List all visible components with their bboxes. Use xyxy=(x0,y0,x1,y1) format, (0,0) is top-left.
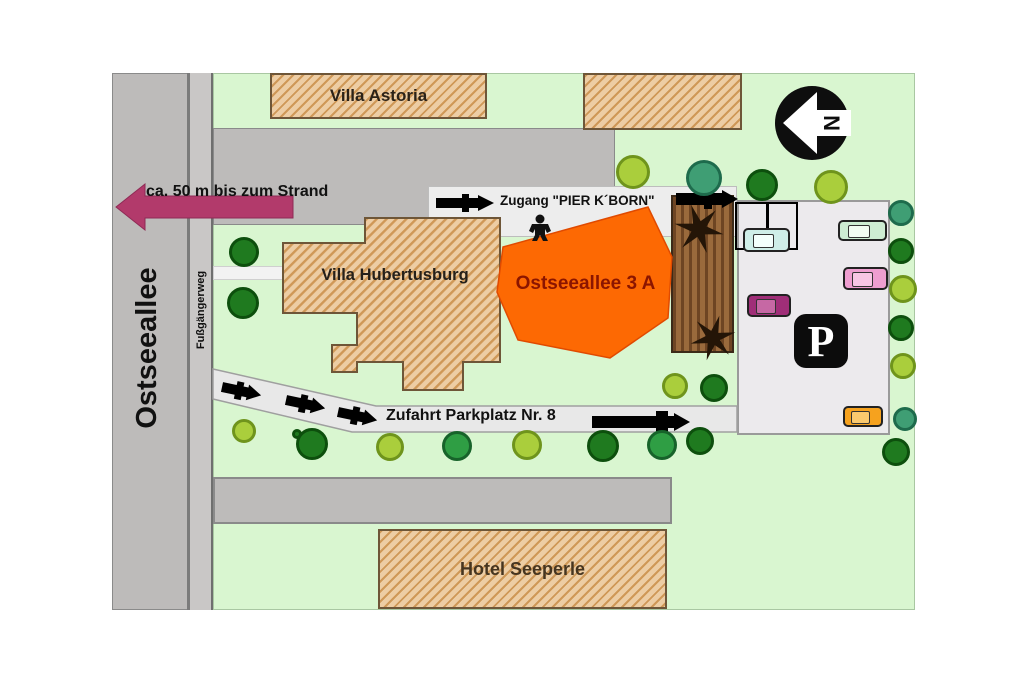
parking-space-divider xyxy=(766,204,769,248)
north-letter: N xyxy=(820,115,845,131)
direction-arrow xyxy=(676,189,738,209)
street-name-fussgaengerweg: Fußgängerweg xyxy=(195,265,209,355)
villa-hubertusburg-label: Villa Hubertusburg xyxy=(297,266,493,285)
site-map: Villa Astoria Hotel Seeperle xyxy=(0,0,1024,683)
street-name-ostseeallee: Ostseeallee xyxy=(131,263,165,433)
parking-sign-icon: P xyxy=(794,314,848,368)
beach-distance-label: ca. 50 m bis zum Strand xyxy=(146,183,328,201)
building-villa-hubertusburg xyxy=(283,218,500,390)
parking-access-label: Zufahrt Parkplatz Nr. 8 xyxy=(386,407,556,425)
marked-parking-spaces xyxy=(735,202,798,250)
property-address-label: Ostseeallee 3 A xyxy=(508,273,663,295)
palm-icon xyxy=(670,203,728,256)
parking-sign-letter: P xyxy=(808,316,835,367)
palm-icon xyxy=(686,313,740,363)
pier-access-label: Zugang "PIER K´BORN" xyxy=(500,193,655,208)
direction-arrow xyxy=(436,194,494,212)
north-arrow-icon: N xyxy=(775,86,851,160)
